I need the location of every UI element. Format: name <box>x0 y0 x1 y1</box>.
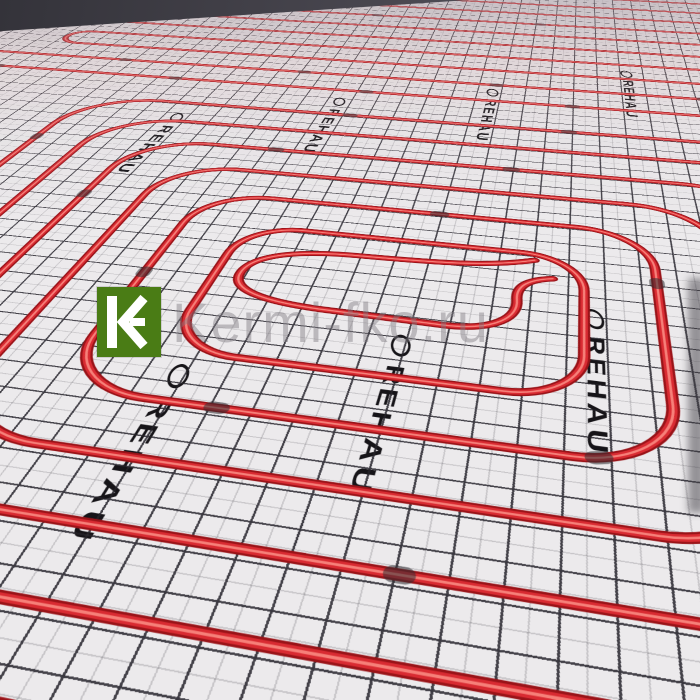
underfloor-heating-photo: REHAU REHAU REHAU REHAU REHAU REHAU <box>0 0 700 700</box>
kermi-k-icon <box>97 287 161 357</box>
kermi-logo <box>97 287 161 357</box>
